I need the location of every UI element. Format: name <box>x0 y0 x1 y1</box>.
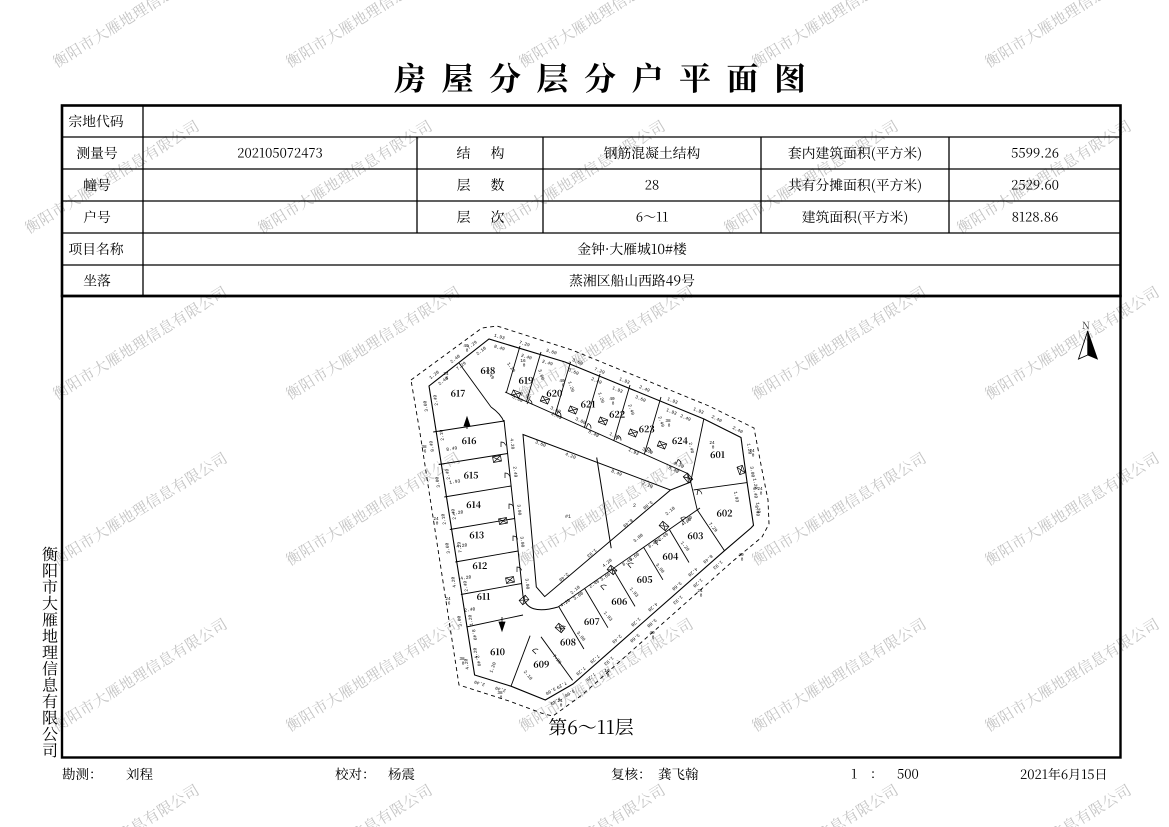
svg-text:2.49: 2.49 <box>588 578 601 589</box>
svg-text:2.49: 2.49 <box>473 678 486 687</box>
svg-text:1.20: 1.20 <box>566 381 575 394</box>
svg-text:2.49: 2.49 <box>444 468 452 480</box>
svg-text:3.60: 3.60 <box>545 348 558 357</box>
svg-text:7.29: 7.29 <box>588 653 600 665</box>
svg-text:0: 0 <box>436 521 439 526</box>
svg-text:2.40: 2.40 <box>449 353 462 365</box>
svg-text:4.20: 4.20 <box>646 601 658 613</box>
svg-text:4.20: 4.20 <box>508 438 515 450</box>
svg-text:3.60: 3.60 <box>599 571 612 582</box>
svg-text:3.60: 3.60 <box>444 542 452 554</box>
svg-text:2.49: 2.49 <box>484 368 495 381</box>
svg-text:1.20: 1.20 <box>596 392 605 405</box>
svg-text:8: 8 <box>466 348 469 353</box>
svg-text:2.10: 2.10 <box>440 513 448 525</box>
svg-text:2.40: 2.40 <box>474 655 482 667</box>
svg-text:1.20: 1.20 <box>488 661 497 674</box>
svg-text:7.29: 7.29 <box>574 665 586 677</box>
svg-text:3.60: 3.60 <box>422 400 430 412</box>
svg-text:2.40: 2.40 <box>464 606 476 614</box>
svg-text:6: 6 <box>562 383 565 388</box>
svg-text:6: 6 <box>448 601 451 606</box>
svg-text:2.10: 2.10 <box>475 345 488 357</box>
svg-text:8: 8 <box>612 401 615 406</box>
svg-text:6: 6 <box>446 376 449 381</box>
svg-text:8.49: 8.49 <box>446 445 458 453</box>
svg-text:7.29: 7.29 <box>456 541 464 553</box>
svg-text:8.49: 8.49 <box>493 344 506 353</box>
svg-text:8: 8 <box>760 491 763 496</box>
svg-text:2.10: 2.10 <box>522 669 534 681</box>
svg-text:2.10: 2.10 <box>664 505 676 517</box>
svg-text:3.60: 3.60 <box>641 446 654 456</box>
svg-text:8: 8 <box>652 635 655 640</box>
svg-text:2.49: 2.49 <box>541 359 554 368</box>
svg-text:2.49: 2.49 <box>432 394 440 406</box>
svg-text:1.93: 1.93 <box>665 407 678 417</box>
svg-text:8: 8 <box>500 695 503 700</box>
svg-text:4.20: 4.20 <box>601 557 613 569</box>
svg-text:3.00: 3.00 <box>515 504 522 516</box>
svg-text:8.49: 8.49 <box>701 553 713 565</box>
svg-text:8: 8 <box>668 423 671 428</box>
svg-text:6: 6 <box>424 449 427 454</box>
svg-text:2: 2 <box>633 503 636 509</box>
svg-text:3.00: 3.00 <box>632 532 644 544</box>
svg-text:1.93: 1.93 <box>627 447 640 457</box>
svg-text:4.20: 4.20 <box>686 566 698 578</box>
svg-text:8: 8 <box>700 593 703 598</box>
svg-text:2.10: 2.10 <box>438 429 446 441</box>
svg-text:4.20: 4.20 <box>450 576 458 588</box>
svg-text:2.49: 2.49 <box>462 580 470 592</box>
svg-text:8.49: 8.49 <box>587 429 600 439</box>
svg-text:8: 8 <box>741 557 744 562</box>
svg-text:0: 0 <box>523 363 526 368</box>
svg-text:0: 0 <box>712 445 715 450</box>
svg-text:2.49: 2.49 <box>511 466 518 478</box>
svg-text:1.20: 1.20 <box>428 369 441 381</box>
svg-text:1.20: 1.20 <box>679 540 691 552</box>
svg-text:3.60: 3.60 <box>536 369 545 382</box>
svg-text:0: 0 <box>560 703 563 708</box>
svg-text:1.20: 1.20 <box>467 614 475 626</box>
svg-text:1.93: 1.93 <box>732 491 740 503</box>
svg-text:2.49: 2.49 <box>450 508 458 520</box>
svg-text:8.49: 8.49 <box>470 629 478 641</box>
svg-text:3.00: 3.00 <box>518 536 525 548</box>
svg-text:2.49: 2.49 <box>656 416 665 429</box>
svg-text:0: 0 <box>752 453 755 458</box>
svg-text:2.49: 2.49 <box>610 633 622 645</box>
svg-text:1.93: 1.93 <box>493 333 506 342</box>
svg-text:7.29: 7.29 <box>455 360 468 372</box>
svg-text:3.00: 3.00 <box>434 476 442 488</box>
svg-text:8.49: 8.49 <box>428 440 436 452</box>
svg-text:2.49: 2.49 <box>626 404 635 417</box>
svg-text:8: 8 <box>462 661 465 666</box>
svg-text:3.60: 3.60 <box>670 580 682 592</box>
svg-text:3.00: 3.00 <box>523 578 530 590</box>
svg-text:1.93: 1.93 <box>611 385 624 395</box>
svg-text:2.40: 2.40 <box>687 442 695 454</box>
svg-text:#1: #1 <box>565 514 571 520</box>
svg-text:0: 0 <box>607 673 610 678</box>
svg-text:2.49: 2.49 <box>679 413 692 423</box>
svg-text:1.20: 1.20 <box>629 616 641 628</box>
svg-text:3.60: 3.60 <box>634 394 647 404</box>
svg-text:3.00: 3.00 <box>748 466 756 478</box>
